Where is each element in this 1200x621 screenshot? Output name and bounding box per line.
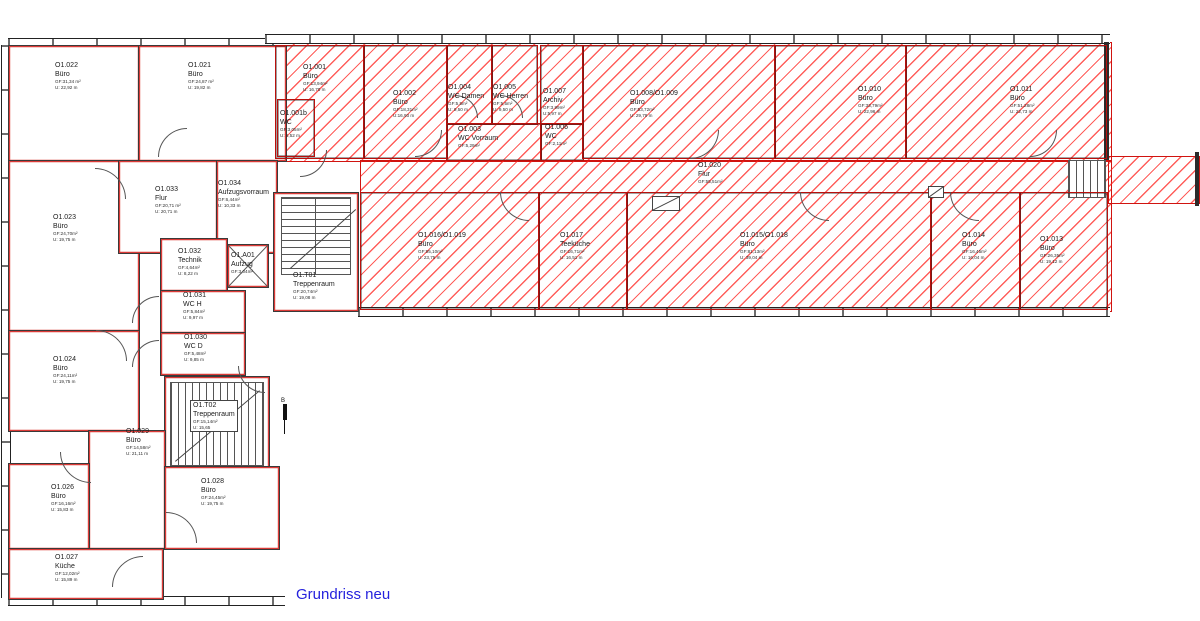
room-label-O1.015-O1.018: O1.015/O1.018Büro GF:81,13m²U: 39,04 m (740, 232, 788, 260)
room-label-O1.030: O1.030WC D GF:5,48m²U: 9,85 m (184, 334, 207, 362)
room-O1.010 (774, 45, 907, 159)
room-label-O1.024: O1.024Büro GF:24,11m²U: 19,75 m (53, 356, 77, 384)
section-marker-bar (283, 404, 287, 420)
section-marker-b: B (281, 398, 287, 434)
room-label-O1.010: O1.010Büro GF:33,79m²U: 22,96 m (858, 86, 883, 114)
room-label-O1.003: O1.003WC Vorraum GF:5,29m² (458, 126, 498, 149)
room-label-O1.001: O1.001Büro GF:13,94m²U: 16,70 m (303, 64, 328, 92)
room-label-O1.031: O1.031WC H GF:5,84m²U: 9,97 m (183, 292, 206, 320)
room-label-O1.034: O1.034Aufzugsvorraum GF:6,44m²U: 10,33 m (218, 180, 269, 208)
room-label-O1.002: O1.002Büro GF:18,31m²U:16,93 m (393, 90, 418, 118)
room-label-O1.001b: O1.001bWC GF:3,05m²U: 6,52 m (280, 110, 307, 138)
room-label-O1.006: O1.006WC GF:2,11m² (545, 124, 568, 147)
room-label-O1.013: O1.013Büro GF:26,35m²U: 19,12 m (1040, 236, 1065, 264)
room-label-O1.028: O1.028Büro GF:24,45m²U: 19,75 m (201, 478, 226, 506)
floor-plan-canvas: O1.022Büro GF:31,34 m²U: 22,92 m O1.021B… (0, 0, 1200, 621)
hatch-zone-corridor-extension (1108, 156, 1200, 204)
window-strip-top-right-wing (265, 34, 1110, 44)
room-label-O1.A01: O1.A01Aufzug GF:3,04m² (231, 252, 255, 275)
fixture-symbol (928, 186, 944, 198)
room-label-O1.014: O1.014Büro GF:16,45m²U: 16,04 m (962, 232, 987, 260)
room-O1.008-O1.009 (582, 45, 776, 159)
room-label-O1.T01: O1.T01Treppenraum GF:20,74m²U: 19,08 m (293, 272, 335, 300)
room-label-O1.029: O1.029Büro GF:14,58m²U: 21,11 m (126, 428, 151, 456)
wall-corridor-end (1195, 152, 1199, 206)
room-label-O1.033: O1.033Flur GF:20,71 m²U: 20,71 m (155, 186, 181, 214)
section-marker-tail (284, 420, 285, 434)
room-label-O1.021: O1.021Büro GF:24,87 m²U: 19,82 m (188, 62, 214, 90)
room-label-O1.016-O1.019: O1.016/O1.019Büro GF:55,10m²U: 23,75 m (418, 232, 466, 260)
room-label-O1.032: O1.032Technik GF:4,64m²U: 8,22 m (178, 248, 202, 276)
room-label-O1.027: O1.027Küche GF:12,02m²U: 15,89 m (55, 554, 80, 582)
room-label-O1.008-O1.009: O1.008/O1.009Büro GF:53,72m²U: 29,79 m (630, 90, 678, 118)
stair-divider-T01 (315, 198, 316, 274)
room-label-O1.023: O1.023Büro GF:24,70m²U: 19,75 m (53, 214, 78, 242)
room-label-O1.011: O1.011Büro GF:51,28m²U: 22,73 m (1010, 86, 1035, 114)
room-label-O1.004: O1.004WC Damen GF:5,5m²U: 9,50 m (448, 84, 484, 112)
room-label-O1.007: O1.007Archiv GF:3,99m²U:5,97 m (543, 88, 566, 116)
room-O1.011 (905, 45, 1107, 159)
table-symbol (652, 196, 680, 211)
room-label-O1.020: O1.020Flur GF:55,51m² (698, 162, 723, 185)
room-label-O1.005: O1.005WC Herren GF:5,5m²U: 9,50 m (493, 84, 528, 112)
drawing-title: Grundriss neu (296, 586, 390, 603)
stair-run-line-T01 (290, 209, 356, 269)
stair-treads-T01 (281, 197, 351, 275)
room-label-O1.017: O1.017Teeküche GF:16,71m²U: 16,51 m (560, 232, 590, 260)
room-label-O1.T02: O1.T02Treppenraum GF:15,14m²U: 15,65 (190, 400, 238, 432)
room-label-O1.022: O1.022Büro GF:31,34 m²U: 22,92 m (55, 62, 81, 90)
room-label-O1.026: O1.026Büro GF:16,16m²U: 15,83 m (51, 484, 76, 512)
door-arc (300, 150, 327, 177)
